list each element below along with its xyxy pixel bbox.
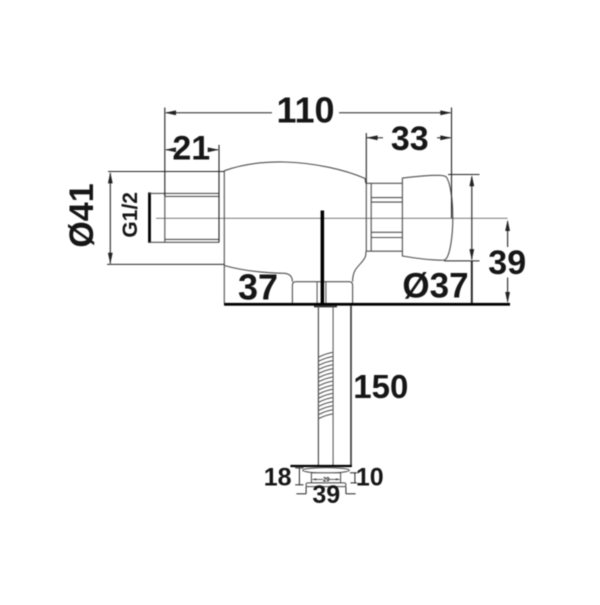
svg-text:150: 150 [353, 368, 408, 405]
svg-text:Ø37: Ø37 [402, 267, 468, 306]
svg-text:33: 33 [391, 120, 429, 158]
svg-text:39: 39 [488, 244, 526, 282]
svg-text:21: 21 [172, 130, 210, 168]
svg-text:18: 18 [264, 464, 292, 492]
svg-text:39: 39 [312, 481, 340, 509]
svg-text:37: 37 [238, 267, 278, 308]
svg-text:110: 110 [276, 90, 334, 131]
svg-text:10: 10 [356, 464, 384, 492]
svg-text:G1/2: G1/2 [119, 192, 142, 238]
svg-text:Ø41: Ø41 [63, 183, 101, 247]
